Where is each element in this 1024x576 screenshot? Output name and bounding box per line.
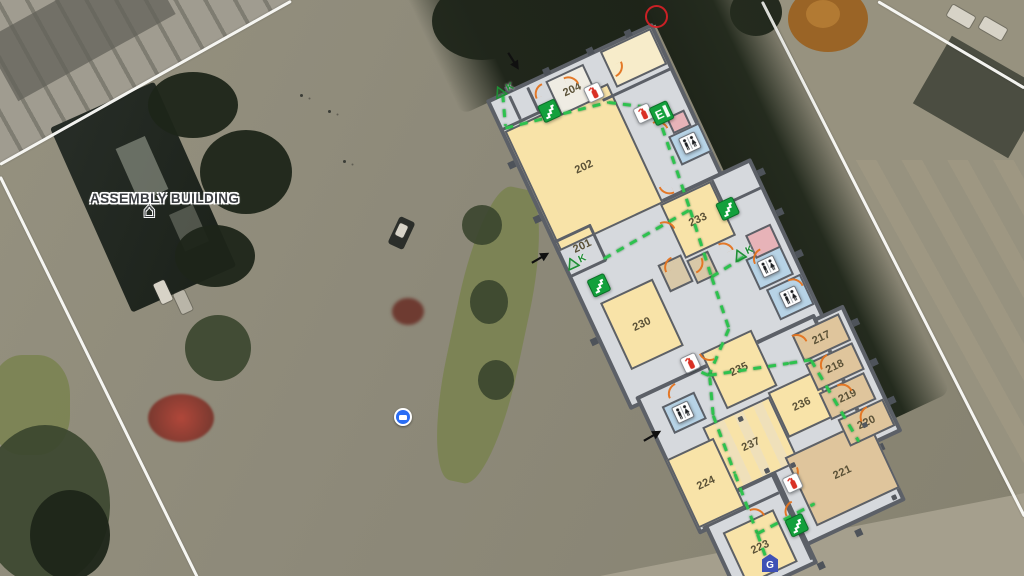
light-pole [300,94,303,97]
tree-canopy [148,72,238,138]
red-bush [392,298,424,325]
red-circle-annotation [645,5,668,28]
bush [470,280,508,324]
bush [462,205,502,245]
room-number-label: 236 [791,395,813,414]
light-pole [343,160,346,163]
room-number-label: 237 [740,435,762,454]
satellite-map-view: 2022042332012302352362372242232212172182… [0,0,1024,576]
entrance-g-label: G [766,559,774,572]
poi-icon[interactable] [394,408,412,426]
bush [478,360,514,400]
tree-canopy [185,315,251,381]
assembly-building-label: ASSEMBLY BUILDING [90,191,239,206]
red-bush [148,394,214,442]
tree-canopy [30,490,110,576]
room-number-label: 202 [573,158,595,177]
poi-icon-inner [396,410,410,424]
tree-canopy [175,225,255,287]
autumn-tree [806,0,840,28]
parked-car [173,289,193,314]
room-number-label: 230 [631,315,653,334]
house-icon: ⌂ [143,199,156,223]
light-pole [328,110,331,113]
room-number-label: 221 [831,463,853,482]
poi-glyph [399,415,407,420]
room-number-label: 224 [695,474,717,493]
room-number-label: 217 [810,328,832,347]
